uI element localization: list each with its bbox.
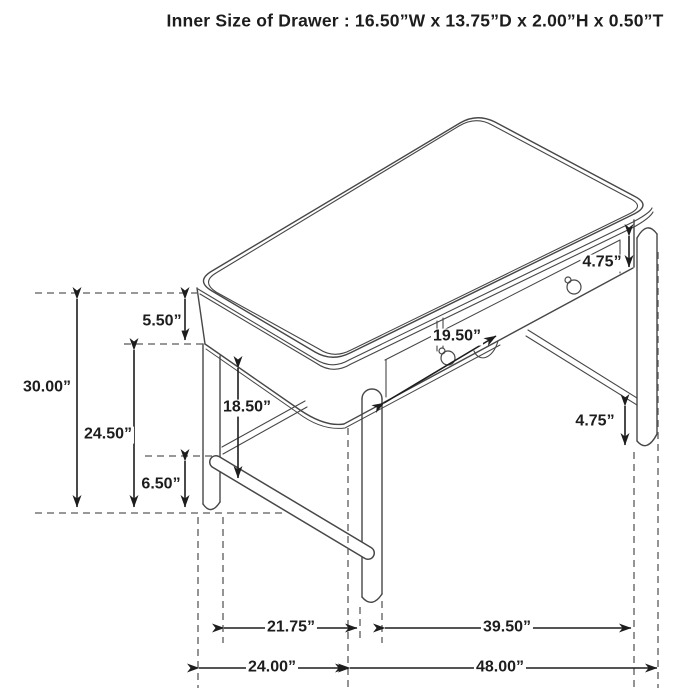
dimension-label-top-depth: 24.00” (246, 660, 298, 677)
dimension-label-apron-to-stretcher: 18.50” (221, 400, 273, 417)
rear-left-leg (203, 344, 220, 510)
diagram-title: Inner Size of Drawer : 16.50”W x 13.75”D… (167, 11, 664, 32)
stretchers (216, 330, 637, 553)
desk-line-drawing (0, 0, 700, 700)
right-stretcher (526, 330, 637, 405)
arrow-drawer-width (384, 336, 496, 403)
front-left-leg (362, 389, 382, 602)
dimension-label-right-stretcher-height: 4.75” (573, 414, 616, 431)
dimension-label-top-apron-height: 5.50” (140, 314, 183, 331)
dimension-label-underside-height: 24.50” (82, 427, 134, 444)
dimension-label-leg-span-depth: 21.75” (265, 620, 317, 637)
dimension-label-stretcher-height: 6.50” (139, 477, 182, 494)
dimension-label-top-length: 48.00” (474, 660, 526, 677)
left-drawer-knob (441, 351, 455, 365)
desk-apron (197, 220, 634, 428)
desk-top (198, 118, 653, 370)
desk (197, 118, 657, 603)
right-leg (637, 228, 657, 446)
dimension-diagram-page: Inner Size of Drawer : 16.50”W x 13.75”D… (0, 0, 700, 700)
dimension-arrows (77, 236, 657, 668)
dimension-label-overall-height: 30.00” (21, 380, 73, 397)
dimension-label-leg-span-length: 39.50” (481, 620, 533, 637)
extension-lines (35, 252, 658, 688)
right-drawer-knob (567, 280, 581, 294)
dimension-label-right-apron-height: 4.75” (580, 255, 623, 272)
dimension-label-drawer-width: 19.50” (431, 329, 483, 346)
